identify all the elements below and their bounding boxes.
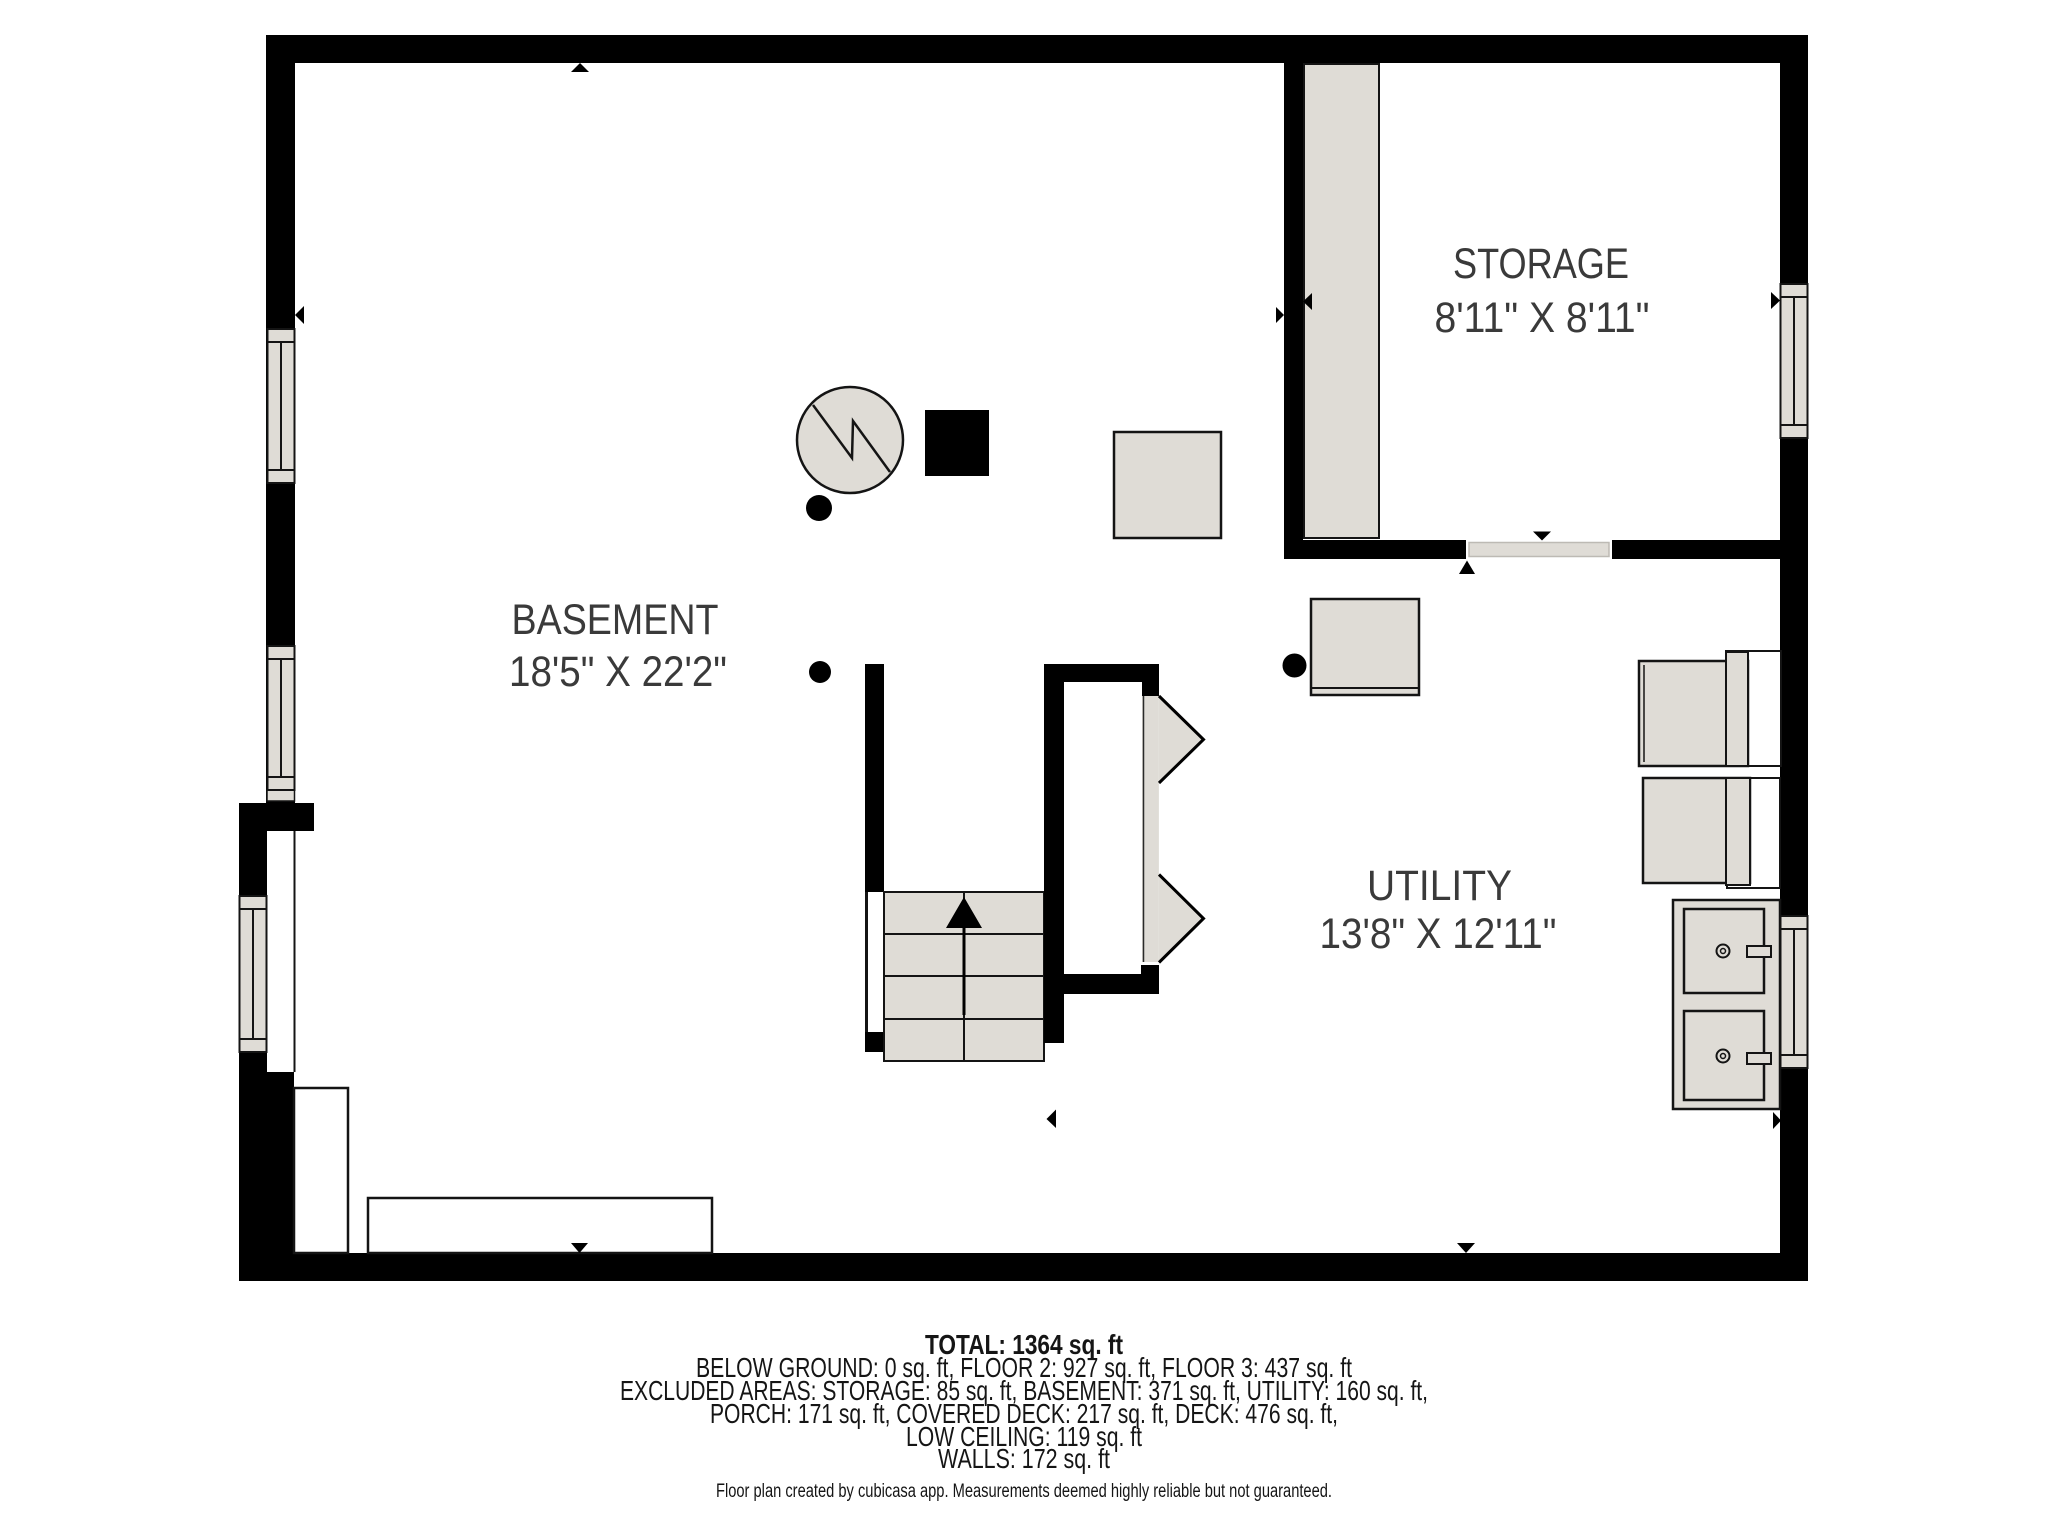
svg-text:18'5" X 22'2": 18'5" X 22'2" bbox=[509, 648, 727, 696]
svg-text:UTILITY: UTILITY bbox=[1367, 862, 1512, 910]
svg-text:BASEMENT: BASEMENT bbox=[512, 596, 719, 644]
svg-text:WALLS: 172 sq. ft: WALLS: 172 sq. ft bbox=[938, 1443, 1110, 1474]
svg-text:13'8" X 12'11": 13'8" X 12'11" bbox=[1320, 910, 1557, 958]
svg-text:8'11" X 8'11": 8'11" X 8'11" bbox=[1435, 294, 1650, 342]
svg-text:STORAGE: STORAGE bbox=[1453, 240, 1629, 288]
svg-text:Floor plan created by cubicasa: Floor plan created by cubicasa app. Meas… bbox=[716, 1481, 1332, 1502]
